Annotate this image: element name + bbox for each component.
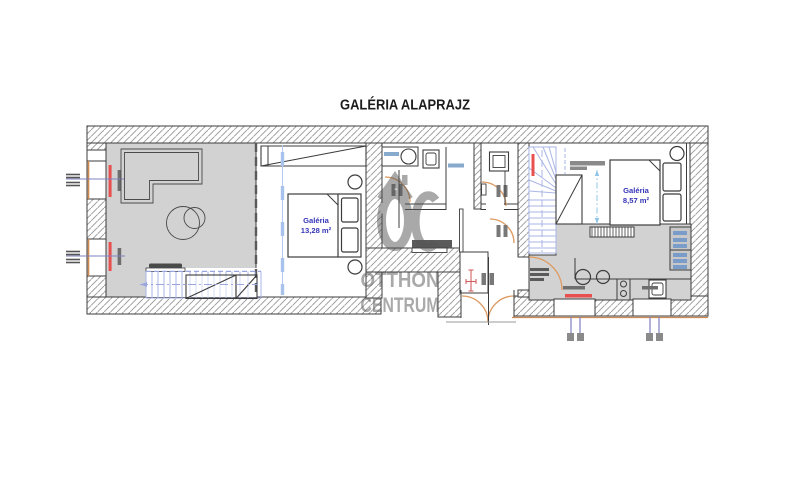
svg-text:8,57 m²: 8,57 m²	[623, 196, 650, 205]
svg-text:OTTHON: OTTHON	[361, 269, 440, 292]
svg-text:CENTRUM: CENTRUM	[361, 294, 440, 317]
svg-text:GALÉRIA ALAPRAJZ: GALÉRIA ALAPRAJZ	[340, 97, 470, 114]
svg-text:Galéria: Galéria	[623, 186, 650, 195]
svg-text:Galéria: Galéria	[303, 216, 330, 225]
svg-text:13,28 m²: 13,28 m²	[301, 226, 332, 235]
